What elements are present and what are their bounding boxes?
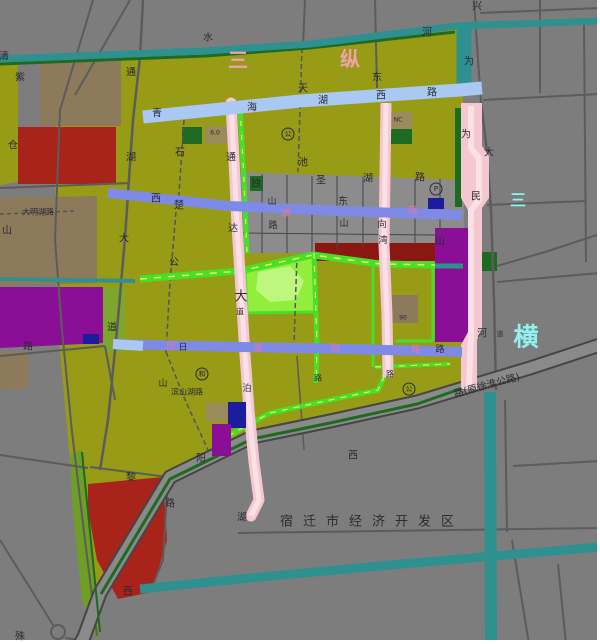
map-label: 楚 — [174, 199, 184, 212]
map-label: 山 — [435, 236, 445, 248]
map-label: 山 — [2, 225, 12, 237]
map-label: 石 — [175, 148, 185, 159]
zone-darkgreen-sq-3 — [388, 129, 412, 144]
map-label: 泊 — [242, 383, 251, 394]
planning-map-image: 水河兴为清紫通仓湖石东青海天湖西路6.0NC90通达大道泊湖大道山路大明湖路西楚… — [0, 0, 600, 644]
map-label: 湖 — [281, 208, 290, 219]
map-label: 西 — [123, 587, 133, 598]
map-label: 路 — [435, 343, 444, 355]
map-label: 向 — [377, 218, 386, 230]
map-label: 河 — [477, 328, 487, 340]
zone-red-block-1 — [18, 127, 116, 184]
zone-brown-block-1 — [40, 57, 121, 126]
map-label: 路 — [314, 373, 322, 383]
map-label: 独 — [251, 177, 261, 190]
map-label: 殊 — [15, 630, 25, 643]
zone-darkgreen-sq-1 — [480, 252, 497, 271]
map-label: 路 — [427, 86, 437, 99]
roundabout — [51, 625, 65, 639]
map-label: 清 — [0, 50, 9, 63]
map-label: 西 — [348, 451, 358, 462]
map-label: 为 — [461, 129, 471, 141]
map-label: 日 — [178, 342, 187, 353]
map-label: 山 — [267, 196, 276, 207]
map-label: 阳 — [166, 341, 175, 352]
map-label: 宿迁市经济开发区 — [280, 514, 464, 530]
map-label: 大 — [119, 232, 129, 245]
map-label: 山 — [158, 378, 167, 389]
map-label: 滨山湖路 — [171, 387, 203, 397]
map-label: 青 — [152, 107, 162, 120]
map-label: 达 — [228, 223, 238, 235]
map-label: 三 — [228, 48, 248, 72]
map-label: 湾 — [378, 234, 387, 246]
map-label: 西 — [376, 91, 386, 102]
map-label: 海 — [247, 101, 257, 114]
map-label: 为 — [464, 56, 474, 68]
map-label: 路 — [268, 219, 277, 231]
zone-darkgreen-strip-river — [455, 108, 462, 207]
map-label: 路 — [415, 171, 425, 184]
map-label: 大 — [234, 290, 247, 305]
map-label: NC — [394, 117, 403, 124]
zone-brown-sq-60b — [206, 403, 228, 421]
map-label: 水 — [203, 32, 213, 44]
blue-road-south-tip — [113, 344, 143, 346]
map-label: 阳 — [330, 343, 339, 354]
map-label: 道 — [497, 329, 504, 338]
map-label: 大 — [484, 146, 494, 159]
map-label: 山 — [339, 218, 348, 229]
map-label: 道 — [236, 307, 244, 317]
map-label: 路 — [408, 204, 417, 216]
circled-symbol-glyph: P — [434, 185, 438, 193]
map-label: 民 — [471, 191, 481, 203]
map-label: 湖 — [253, 343, 262, 354]
river-small-west — [0, 279, 135, 281]
circled-symbol-glyph: 公 — [285, 130, 292, 138]
map-label: 兴 — [472, 1, 482, 13]
map-label: 天 — [298, 84, 308, 95]
zone-border-bottom — [0, 640, 600, 644]
map-label: 纵 — [340, 47, 360, 71]
map-label: 通 — [126, 67, 136, 79]
map-label: 三 — [510, 191, 526, 210]
map-label: 公 — [169, 258, 179, 269]
map-label: 紫 — [15, 72, 25, 84]
map-label: 东 — [338, 195, 348, 208]
zone-brown-block-3 — [0, 352, 28, 390]
map-label: 路 — [386, 369, 394, 379]
map-canvas: 水河兴为清紫通仓湖石东青海天湖西路6.0NC90通达大道泊湖大道山路大明湖路西楚… — [0, 0, 600, 644]
map-label: 湖 — [318, 95, 328, 107]
map-label: 道 — [107, 321, 117, 334]
map-label: 仓 — [8, 139, 18, 152]
map-label: 西 — [151, 194, 161, 205]
river-weimin-south — [490, 392, 491, 644]
map-label: 黎 — [126, 471, 136, 484]
map-label: 路 — [165, 497, 175, 510]
map-label: 6.0 — [210, 130, 220, 137]
map-label: 90 — [399, 315, 407, 322]
map-label: 路 — [411, 343, 420, 355]
map-label: 大明湖路 — [22, 207, 54, 217]
zone-purple-block-3 — [212, 424, 231, 456]
map-label: 横 — [513, 323, 538, 352]
map-label: 湖 — [363, 173, 373, 185]
circled-symbol-glyph: 和 — [199, 369, 206, 378]
zone-darkgreen-sq-2 — [182, 127, 202, 144]
map-label: 湖 — [237, 512, 247, 524]
map-label: 池 — [298, 156, 308, 169]
map-label: 圣 — [316, 175, 326, 187]
circled-symbol-glyph: 公 — [406, 385, 413, 393]
map-label: 河 — [422, 27, 432, 39]
map-label: 通 — [226, 152, 236, 164]
map-label: 湖 — [126, 152, 136, 164]
map-label: 阳 — [196, 453, 206, 465]
zone-navy-block-3 — [428, 198, 444, 209]
map-label: 路 — [23, 340, 33, 353]
zone-navy-block-1 — [83, 334, 99, 344]
map-label: 东 — [372, 71, 382, 84]
